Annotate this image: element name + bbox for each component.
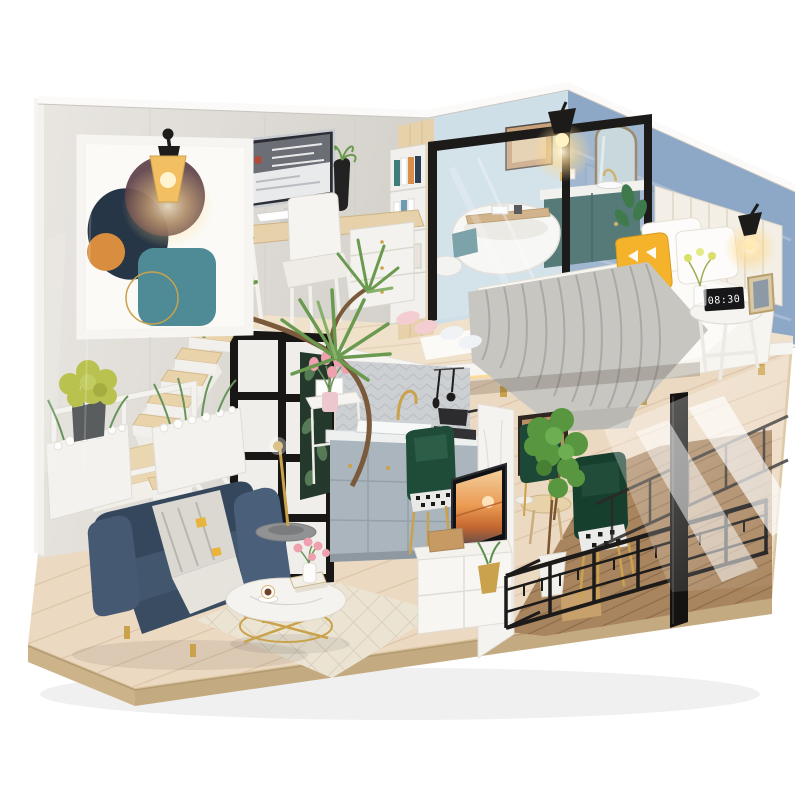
tv-console	[414, 540, 512, 634]
product-photo-dollhouse: 08:30	[0, 0, 800, 800]
photo-frame	[748, 274, 774, 314]
marble-top	[226, 578, 346, 622]
acrylic-left-edge	[34, 98, 44, 556]
drawer-unit	[350, 222, 414, 310]
tissue-box	[428, 528, 464, 552]
screen-photo-mug	[254, 156, 262, 164]
clock-display: 08:30	[707, 294, 740, 307]
digital-clock: 08:30	[703, 287, 744, 312]
